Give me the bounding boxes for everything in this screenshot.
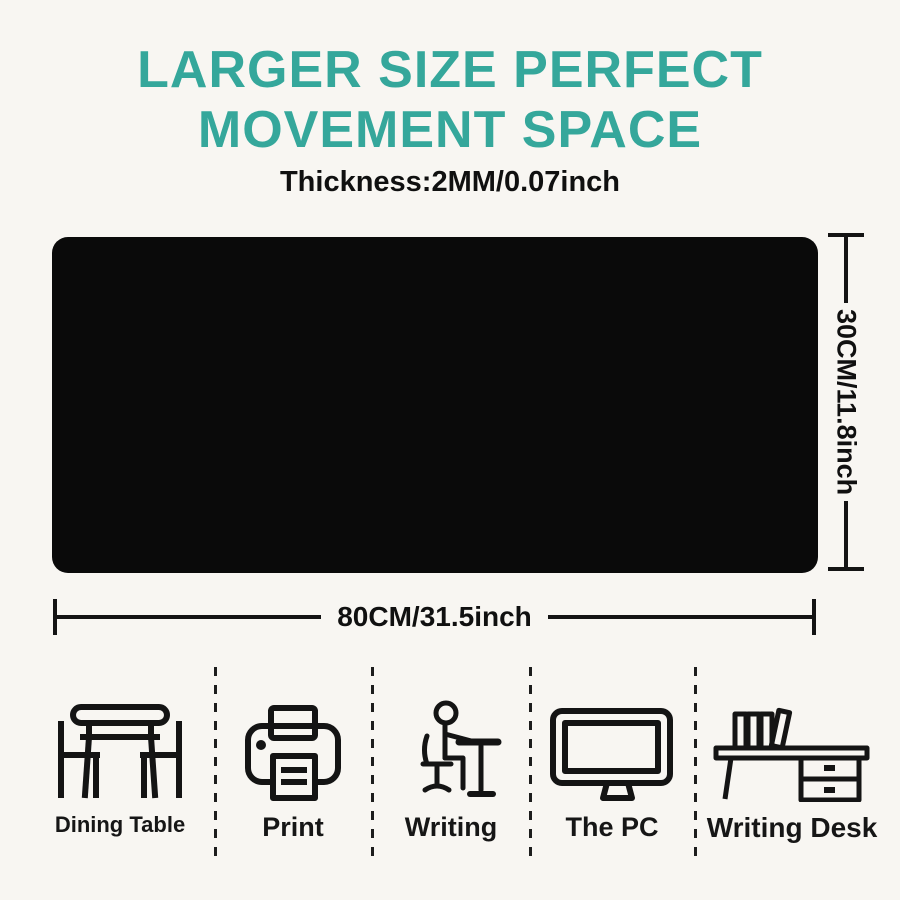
dining-table-icon [53,690,187,802]
mouse-pad-image [52,237,818,573]
headline-line1: LARGER SIZE PERFECT [0,40,900,100]
dimension-line-right [548,615,812,619]
height-dimension: 30CM/11.8inch [828,233,864,571]
width-dimension-label: 80CM/31.5inch [337,601,532,633]
printer-icon [240,690,346,802]
use-case-label: The PC [565,812,658,843]
writing-person-icon [399,690,503,802]
dashed-divider [529,667,532,861]
use-case-print: Print [222,690,364,855]
headline-line2: MOVEMENT SPACE [0,100,900,160]
width-dimension: 80CM/31.5inch [53,599,816,635]
dimension-line-upper [844,237,848,303]
use-case-label: Writing [405,812,497,843]
dimension-line-lower [844,501,848,567]
dashed-divider [214,667,217,861]
use-case-dining-table: Dining Table [28,690,212,855]
thickness-spec: Thickness:2MM/0.07inch [0,166,900,199]
dimension-cap-bottom [828,567,864,571]
use-case-writing: Writing [379,690,523,855]
use-case-label: Print [262,812,324,843]
dashed-divider [371,667,374,861]
dashed-divider [694,667,697,861]
dimension-cap-right [812,599,816,635]
product-infographic: LARGER SIZE PERFECT MOVEMENT SPACE Thick… [0,0,900,900]
use-case-label: Writing Desk [707,812,878,844]
use-case-the-pc: The PC [537,690,687,855]
use-case-writing-desk: Writing Desk [700,690,884,855]
monitor-icon [548,690,676,802]
dimension-line-left [57,615,321,619]
use-case-label: Dining Table [55,812,185,838]
writing-desk-icon [709,690,875,802]
height-dimension-label: 30CM/11.8inch [831,309,862,495]
